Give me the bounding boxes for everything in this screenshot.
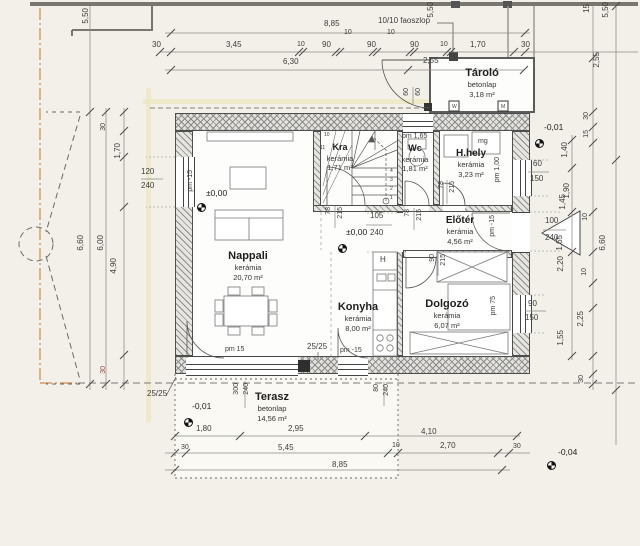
room-label-trol: Tárolóbetonlap3,18 m² bbox=[465, 66, 499, 100]
dim-label: 10 bbox=[297, 41, 305, 48]
level-marker bbox=[547, 461, 556, 470]
dim-label: 25/25 bbox=[147, 390, 167, 398]
level-label: -0,01 bbox=[192, 402, 211, 411]
dim-label: 5,50 bbox=[602, 2, 610, 18]
dim-label: 240 bbox=[383, 384, 390, 396]
dim-label: 6,00 bbox=[97, 235, 105, 251]
dim-label: 215 bbox=[337, 207, 344, 219]
dim-label: 105 bbox=[370, 212, 383, 220]
level-label: ±0,00 bbox=[206, 189, 227, 198]
dim-label: 60 bbox=[533, 160, 542, 168]
level-marker bbox=[197, 203, 206, 212]
dim-label: 1 bbox=[390, 196, 393, 201]
dim-label: 1,40 bbox=[561, 142, 569, 158]
dim-label: pm -15 bbox=[489, 215, 496, 237]
dim-label: 30 bbox=[583, 112, 590, 120]
dim-label: 8,85 bbox=[324, 20, 340, 28]
dim-label: 30 bbox=[513, 443, 521, 450]
dim-label: 10 bbox=[324, 133, 330, 138]
dim-label: 3 bbox=[390, 178, 393, 183]
dim-label: 10/10 faoszlop bbox=[378, 17, 430, 25]
level-marker bbox=[338, 244, 347, 253]
dim-label: mg bbox=[478, 138, 488, 145]
room-label-nappali: Nappalikerámia20,70 m² bbox=[228, 249, 268, 283]
room-label-dolgoz: Dolgozókerámia6,07 m² bbox=[425, 297, 468, 331]
dim-label: 240 bbox=[370, 229, 383, 237]
room-label-terasz: Teraszbetonlap14,56 m² bbox=[255, 390, 289, 424]
dim-label: 3,45 bbox=[226, 41, 242, 49]
dim-label: 10 bbox=[440, 41, 448, 48]
dim-label: pm -15 bbox=[340, 347, 362, 354]
dim-label: 215 bbox=[440, 254, 447, 266]
dim-label: 120 bbox=[141, 168, 154, 176]
dim-label: 150 bbox=[530, 175, 543, 183]
dim-label: 78 bbox=[404, 209, 411, 217]
level-label: -0,01 bbox=[544, 123, 563, 132]
dim-label: 90 bbox=[429, 254, 436, 262]
dim-label: 30 bbox=[100, 366, 107, 374]
level-marker bbox=[184, 418, 193, 427]
dim-label: pm 1,65 bbox=[402, 133, 427, 140]
level-label: ±0,00 bbox=[346, 228, 367, 237]
dim-label: 2 bbox=[390, 187, 393, 192]
labels-layer: 5,508,8510/10 faoszlop1010303,4510909090… bbox=[0, 0, 640, 546]
dim-label: W bbox=[452, 105, 457, 110]
dim-label: 60 bbox=[403, 88, 410, 96]
room-label-wc: Wckerámia1,81 m² bbox=[402, 143, 429, 174]
room-label-hhely: H.helykerámia3,23 m² bbox=[456, 147, 486, 180]
dim-label: 2,70 bbox=[440, 442, 456, 450]
dim-label: 80 bbox=[373, 384, 380, 392]
dim-label: M bbox=[501, 105, 505, 110]
dim-label: 30 bbox=[152, 41, 161, 49]
dim-label: 90 bbox=[367, 41, 376, 49]
dim-label: 11 bbox=[320, 146, 325, 151]
level-label: -0,04 bbox=[558, 448, 577, 457]
dim-label: 60 bbox=[415, 88, 422, 96]
dim-label: 8,85 bbox=[332, 461, 348, 469]
dim-label: 15 bbox=[583, 4, 591, 13]
dim-label: 6,60 bbox=[599, 235, 607, 251]
dim-label: 4 bbox=[390, 169, 393, 174]
level-marker bbox=[535, 139, 544, 148]
dim-label: 240 bbox=[141, 182, 154, 190]
dim-label: 1,70 bbox=[114, 143, 122, 159]
dim-label: H bbox=[380, 256, 386, 264]
dim-label: 2,55 bbox=[423, 57, 439, 65]
dim-label: 300 bbox=[233, 383, 240, 395]
dim-label: pm 1,00 bbox=[494, 157, 501, 182]
room-label-konyha: Konyhakerámia8,00 m² bbox=[338, 300, 378, 334]
dim-label: pm -15 bbox=[187, 170, 194, 192]
dim-label: 30 bbox=[578, 375, 585, 383]
dim-label: pm 75 bbox=[490, 296, 497, 315]
dim-label: 5,45 bbox=[278, 444, 294, 452]
dim-label: 1,70 bbox=[470, 41, 486, 49]
dim-label: 10 bbox=[387, 29, 395, 36]
dim-label: 15 bbox=[583, 130, 590, 138]
dim-label: 5,50 bbox=[82, 8, 90, 24]
dim-label: 10 bbox=[344, 29, 352, 36]
dim-label: 100 bbox=[545, 217, 558, 225]
dim-label: 25/25 bbox=[307, 343, 327, 351]
dim-label: 1,55 bbox=[557, 330, 565, 346]
dim-label: 2,95 bbox=[288, 425, 304, 433]
dim-label: 78 bbox=[325, 207, 332, 215]
dim-label: 30 bbox=[100, 123, 107, 131]
dim-label: 2,20 bbox=[557, 256, 565, 272]
dim-label: 1,65 bbox=[556, 235, 564, 251]
floor-plan-drawing: 5,508,8510/10 faoszlop1010303,4510909090… bbox=[0, 0, 640, 546]
dim-label: 2,55 bbox=[593, 52, 601, 68]
dim-label: 6,30 bbox=[283, 58, 299, 66]
dim-label: 10 bbox=[581, 268, 588, 276]
dim-label: 78 bbox=[438, 181, 445, 189]
dim-label: 10 bbox=[582, 213, 589, 221]
dim-label: 4,10 bbox=[421, 428, 437, 436]
room-label-kra: Krakerámia1,71 m² bbox=[327, 142, 354, 173]
dim-label: 6,60 bbox=[77, 235, 85, 251]
dim-label: 2,25 bbox=[577, 311, 585, 327]
dim-label: 215 bbox=[416, 209, 423, 221]
dim-label: 10 bbox=[392, 442, 400, 449]
dim-label: pm 15 bbox=[225, 346, 244, 353]
dim-label: 150 bbox=[525, 314, 538, 322]
dim-label: 90 bbox=[410, 41, 419, 49]
dim-label: 30 bbox=[521, 41, 530, 49]
dim-label: 1,80 bbox=[196, 425, 212, 433]
room-label-eltr: Előtérkerámia4,56 m² bbox=[446, 214, 474, 247]
dim-label: 4,90 bbox=[110, 258, 118, 274]
dim-label: 240 bbox=[243, 383, 250, 395]
dim-label: 215 bbox=[449, 181, 456, 193]
dim-label: 1,45 bbox=[559, 194, 567, 210]
dim-label: 90 bbox=[322, 41, 331, 49]
dim-label: 30 bbox=[181, 444, 189, 451]
dim-label: 90 bbox=[528, 300, 537, 308]
dim-label: 5,50 bbox=[427, 2, 435, 18]
